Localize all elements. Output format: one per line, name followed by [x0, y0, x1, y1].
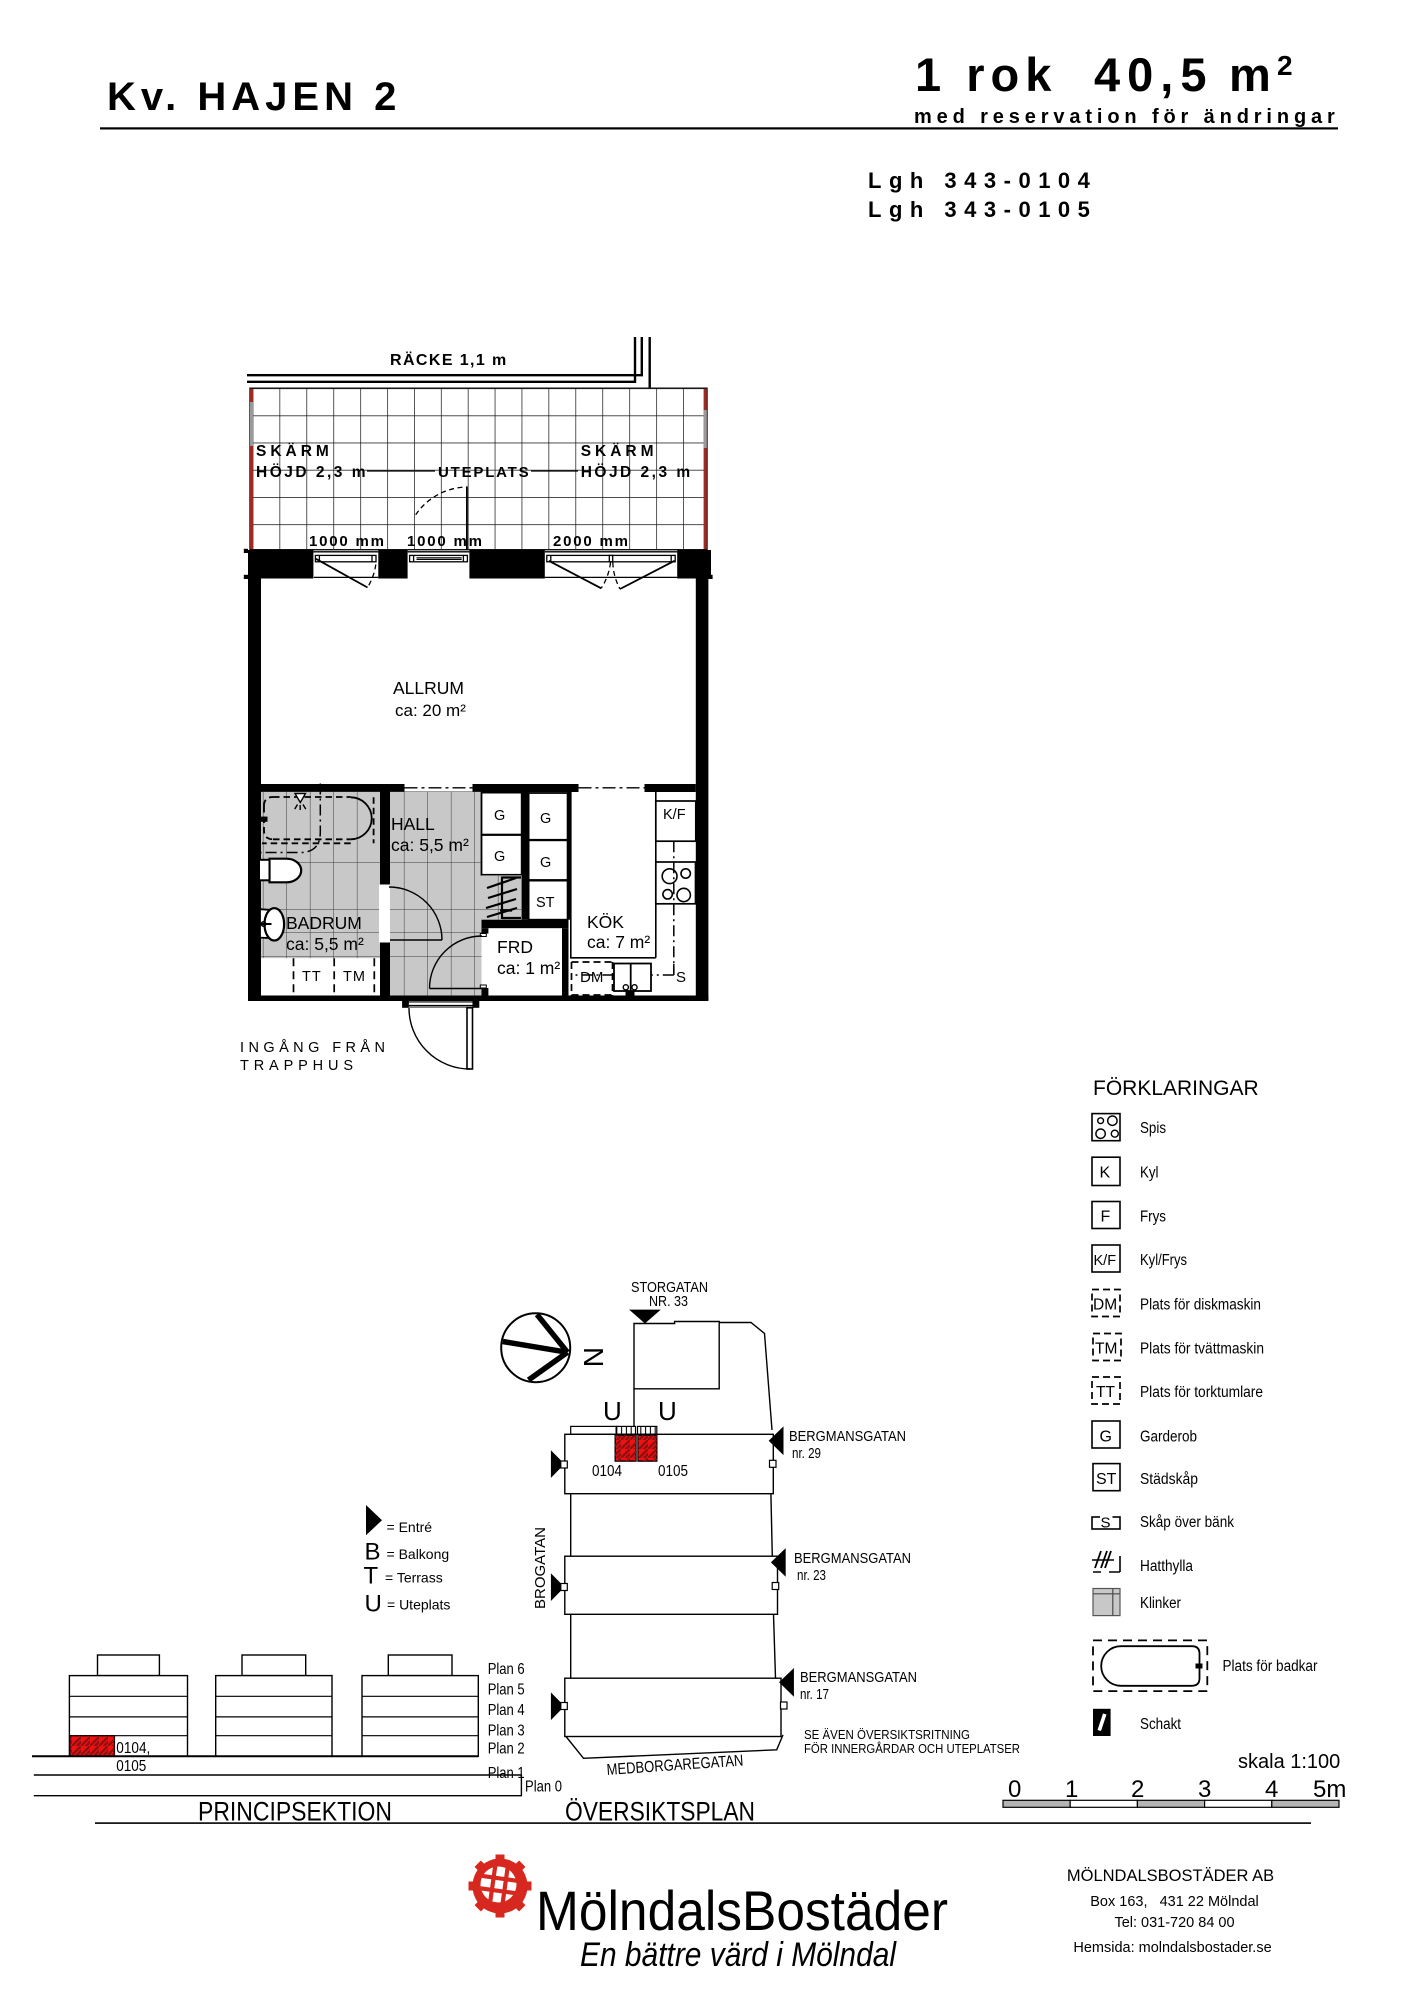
svg-text:Plats för torktumlare: Plats för torktumlare	[1140, 1384, 1263, 1401]
svg-text:MÖLNDALSBOSTÄDER AB: MÖLNDALSBOSTÄDER AB	[1067, 1867, 1274, 1885]
svg-text:Lgh 343-0105: Lgh 343-0105	[868, 197, 1097, 222]
svg-text:= Entré: = Entré	[387, 1519, 433, 1535]
svg-text:0104,: 0104,	[116, 1740, 150, 1757]
svg-text:Lgh 343-0104: Lgh 343-0104	[868, 168, 1097, 193]
svg-text:G: G	[540, 855, 551, 871]
svg-text:1 rok: 1 rok	[915, 48, 1057, 101]
svg-text:N: N	[578, 1347, 609, 1367]
svg-text:Plats för diskmaskin: Plats för diskmaskin	[1140, 1297, 1261, 1314]
svg-text:FÖRKLARINGAR: FÖRKLARINGAR	[1093, 1077, 1259, 1100]
svg-text:BERGMANSGATAN: BERGMANSGATAN	[800, 1669, 917, 1686]
svg-text:DM: DM	[1093, 1297, 1117, 1314]
svg-text:= Balkong: = Balkong	[387, 1546, 450, 1562]
svg-text:nr. 17: nr. 17	[800, 1686, 829, 1703]
svg-text:ca: 1 m²: ca: 1 m²	[497, 958, 560, 978]
svg-text:Plan 6: Plan 6	[488, 1661, 525, 1678]
svg-text:B: B	[365, 1538, 381, 1565]
svg-text:RÄCKE 1,1 m: RÄCKE 1,1 m	[390, 351, 508, 369]
svg-text:K/F: K/F	[663, 807, 686, 823]
svg-text:HÖJD 2,3 m: HÖJD 2,3 m	[581, 464, 693, 481]
svg-text:K/F: K/F	[1094, 1253, 1117, 1269]
svg-text:ca: 20 m²: ca: 20 m²	[395, 701, 466, 720]
svg-text:ca: 5,5 m²: ca: 5,5 m²	[286, 934, 364, 954]
svg-text:SE ÄVEN ÖVERSIKTSRITNING: SE ÄVEN ÖVERSIKTSRITNING	[804, 1728, 970, 1742]
svg-text:TRAPPHUS: TRAPPHUS	[240, 1058, 353, 1074]
svg-text:BROGATAN: BROGATAN	[532, 1527, 549, 1609]
svg-text:BERGMANSGATAN: BERGMANSGATAN	[794, 1550, 911, 1567]
svg-text:Plan 5: Plan 5	[488, 1682, 525, 1699]
svg-text:HÖJD 2,3 m: HÖJD 2,3 m	[256, 464, 368, 481]
svg-text:Kyl: Kyl	[1140, 1165, 1159, 1182]
svg-text:G: G	[540, 811, 551, 827]
svg-text:Plan 3: Plan 3	[488, 1723, 525, 1740]
svg-text:U: U	[603, 1396, 622, 1426]
svg-text:HALL: HALL	[391, 814, 435, 834]
svg-text:1000 mm: 1000 mm	[309, 533, 386, 550]
svg-text:ca: 5,5 m²: ca: 5,5 m²	[391, 835, 469, 855]
svg-text:NR. 33: NR. 33	[649, 1293, 688, 1310]
svg-text:BERGMANSGATAN: BERGMANSGATAN	[789, 1428, 906, 1445]
svg-text:PRINCIPSEKTION: PRINCIPSEKTION	[198, 1797, 392, 1827]
svg-text:G: G	[494, 849, 505, 865]
svg-text:4: 4	[1265, 1776, 1278, 1803]
svg-text:5m: 5m	[1313, 1776, 1346, 1803]
svg-text:FRD: FRD	[497, 937, 533, 957]
svg-text:ÖVERSIKTSPLAN: ÖVERSIKTSPLAN	[565, 1797, 755, 1827]
svg-text:S: S	[1101, 1515, 1111, 1532]
svg-text:2: 2	[1131, 1776, 1144, 1803]
svg-text:G: G	[1100, 1429, 1112, 1446]
svg-text:ST: ST	[536, 895, 555, 911]
svg-text:Plan 4: Plan 4	[488, 1702, 525, 1719]
svg-text:BADRUM: BADRUM	[286, 913, 362, 933]
svg-text:Garderob: Garderob	[1140, 1429, 1197, 1446]
svg-text:3: 3	[1198, 1776, 1211, 1803]
svg-text:T: T	[364, 1563, 379, 1590]
svg-text:SKÄRM: SKÄRM	[581, 443, 658, 460]
svg-text:S: S	[676, 969, 686, 986]
svg-text:Frys: Frys	[1140, 1209, 1166, 1226]
svg-text:0105: 0105	[658, 1463, 688, 1480]
svg-text:En bättre värd i Mölndal: En bättre värd i Mölndal	[580, 1936, 897, 1974]
svg-text:TM: TM	[343, 969, 366, 985]
svg-text:0105: 0105	[116, 1758, 146, 1775]
svg-text:Box 163, 431 22 Mölndal: Box 163, 431 22 Mölndal	[1090, 1894, 1258, 1910]
svg-text:m: m	[1229, 48, 1271, 101]
svg-text:Hemsida: molndalsbostader.se: Hemsida: molndalsbostader.se	[1073, 1940, 1271, 1956]
svg-text:40,5: 40,5	[1094, 48, 1213, 101]
svg-text:Kv. HAJEN 2: Kv. HAJEN 2	[107, 75, 401, 119]
svg-text:MölndalsBostäder: MölndalsBostäder	[536, 1879, 948, 1942]
svg-text:2: 2	[1277, 50, 1293, 81]
svg-text:F: F	[1101, 1209, 1111, 1226]
svg-text:Städskåp: Städskåp	[1140, 1471, 1198, 1488]
svg-text:ca: 7 m²: ca: 7 m²	[587, 932, 650, 952]
svg-text:Plats för tvättmaskin: Plats för tvättmaskin	[1140, 1341, 1264, 1358]
svg-text:nr. 29: nr. 29	[792, 1445, 821, 1462]
svg-text:= Uteplats: = Uteplats	[387, 1597, 450, 1613]
svg-text:Plats för badkar: Plats för badkar	[1223, 1658, 1318, 1675]
svg-text:INGÅNG FRÅN: INGÅNG FRÅN	[240, 1039, 385, 1056]
svg-text:Plan 1: Plan 1	[488, 1765, 525, 1782]
svg-text:Plan 0: Plan 0	[525, 1779, 562, 1796]
svg-text:DM: DM	[580, 969, 603, 986]
svg-text:TT: TT	[1096, 1384, 1115, 1401]
svg-text:Schakt: Schakt	[1140, 1716, 1182, 1733]
svg-text:Spis: Spis	[1140, 1120, 1166, 1137]
svg-text:TT: TT	[302, 969, 322, 985]
svg-text:G: G	[494, 808, 505, 824]
svg-text:KÖK: KÖK	[587, 912, 624, 932]
svg-text:SKÄRM: SKÄRM	[256, 443, 333, 460]
svg-text:UTEPLATS: UTEPLATS	[438, 464, 530, 481]
svg-text:nr. 23: nr. 23	[797, 1567, 826, 1584]
svg-text:Tel: 031-720 84 00: Tel: 031-720 84 00	[1114, 1915, 1234, 1931]
svg-text:U: U	[658, 1396, 677, 1426]
svg-text:K: K	[1100, 1165, 1111, 1182]
svg-text:Kyl/Frys: Kyl/Frys	[1140, 1252, 1187, 1269]
svg-text:0: 0	[1008, 1776, 1021, 1803]
svg-text:2000 mm: 2000 mm	[553, 533, 630, 550]
svg-text:1: 1	[1065, 1776, 1078, 1803]
svg-text:Hatthylla: Hatthylla	[1140, 1558, 1193, 1575]
svg-text:0104: 0104	[592, 1463, 622, 1480]
svg-text:med reservation för ändringar: med reservation för ändringar	[914, 106, 1338, 128]
svg-text:TM: TM	[1095, 1341, 1117, 1358]
svg-text:Klinker: Klinker	[1140, 1595, 1181, 1612]
svg-text:FÖR INNERGÅRDAR OCH UTEPLATSER: FÖR INNERGÅRDAR OCH UTEPLATSER	[804, 1741, 1020, 1756]
svg-text:= Terrass: = Terrass	[385, 1570, 443, 1586]
svg-text:ALLRUM: ALLRUM	[393, 678, 464, 698]
svg-text:Plan 2: Plan 2	[488, 1741, 525, 1758]
svg-text:1000 mm: 1000 mm	[407, 533, 484, 550]
svg-text:Skåp över bänk: Skåp över bänk	[1140, 1514, 1234, 1531]
svg-text:ST: ST	[1096, 1471, 1117, 1488]
svg-text:skala 1:100: skala 1:100	[1238, 1751, 1340, 1773]
svg-text:U: U	[365, 1590, 382, 1617]
